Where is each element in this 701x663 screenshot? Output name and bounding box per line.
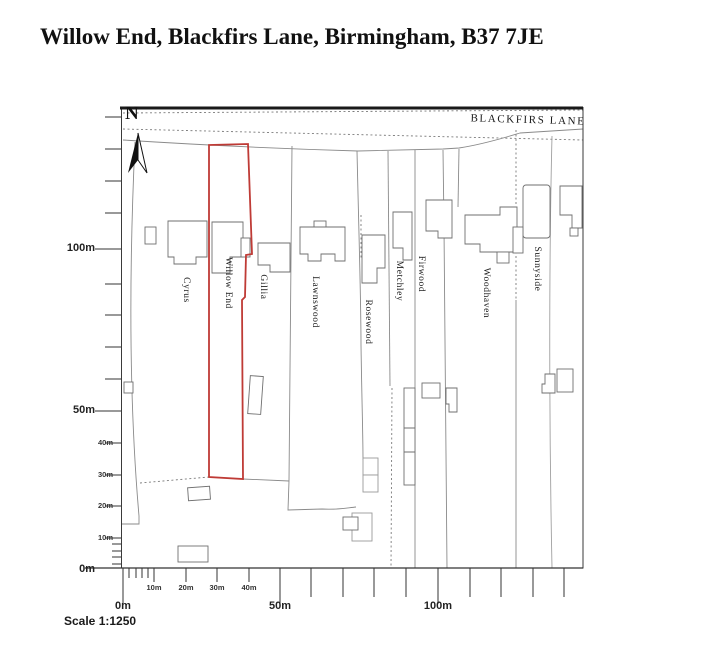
v-scale-label: 40m — [53, 438, 113, 447]
scale-caption: Scale 1:1250 — [64, 614, 136, 628]
plot-label: Firwood — [416, 256, 426, 292]
plot-boundaries — [122, 136, 552, 568]
north-arrow-icon — [128, 133, 147, 173]
plot-label: Woodhaven — [481, 268, 491, 319]
scale-ticks — [85, 117, 583, 604]
road-edge-lines — [123, 129, 583, 151]
site-plan-drawing — [0, 0, 701, 663]
highlighted-plot-outline — [209, 144, 252, 479]
h-scale-label: 100m — [413, 600, 463, 612]
h-scale-label: 40m — [234, 583, 264, 592]
building-footprints — [124, 185, 582, 562]
plot-label: Metchley — [394, 261, 404, 302]
h-scale-label: 30m — [202, 583, 232, 592]
h-scale-label: 10m — [139, 583, 169, 592]
v-scale-label: 20m — [53, 501, 113, 510]
plot-label: Cyrus — [181, 277, 191, 303]
site-plan-page: Willow End, Blackfirs Lane, Birmingham, … — [0, 0, 701, 663]
plot-label: Willow End — [223, 257, 233, 309]
v-scale-label: 10m — [53, 533, 113, 542]
v-scale-label: 100m — [35, 242, 95, 254]
plot-label: Sunnyside — [532, 247, 542, 292]
plot-label: Lawnswood — [310, 276, 320, 328]
plot-label: Rosewood — [363, 300, 373, 345]
north-label: N — [125, 103, 139, 125]
v-scale-label: 50m — [35, 404, 95, 416]
v-scale-label: 30m — [53, 470, 113, 479]
h-scale-label: 20m — [171, 583, 201, 592]
h-scale-label: 50m — [255, 600, 305, 612]
v-scale-label: 0m — [35, 563, 95, 575]
h-scale-label: 0m — [98, 600, 148, 612]
plot-label: Gillia — [258, 274, 268, 299]
